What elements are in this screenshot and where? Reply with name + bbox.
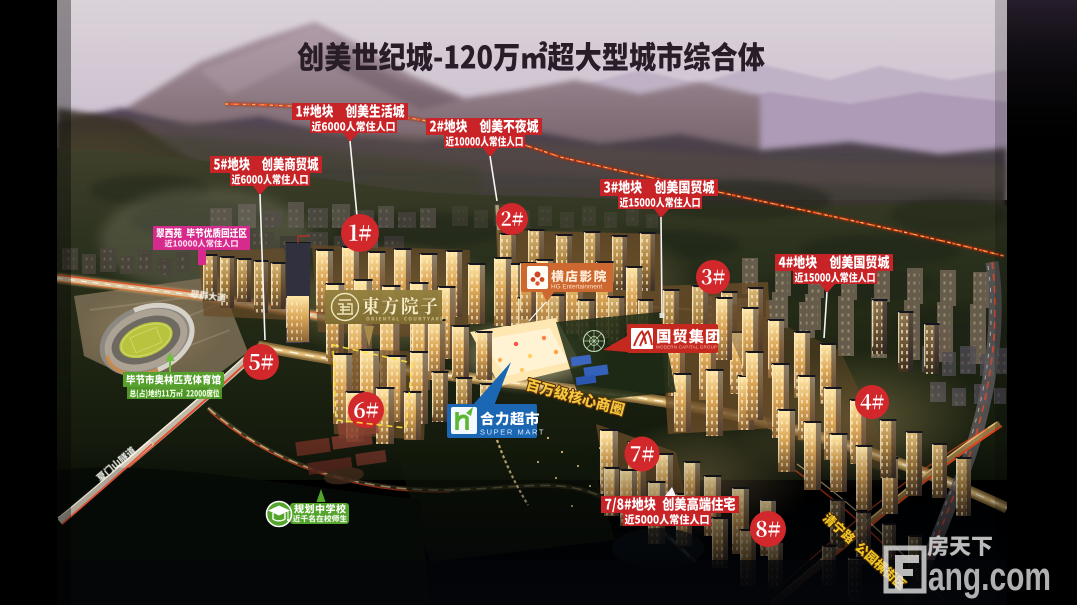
svg-text:HG Entertainment: HG Entertainment (551, 284, 602, 291)
svg-text:SUPER MART: SUPER MART (480, 428, 545, 437)
svg-text:ang.com: ang.com (928, 555, 1051, 599)
svg-text:MODERN CAPITAL GROUP: MODERN CAPITAL GROUP (656, 345, 717, 350)
